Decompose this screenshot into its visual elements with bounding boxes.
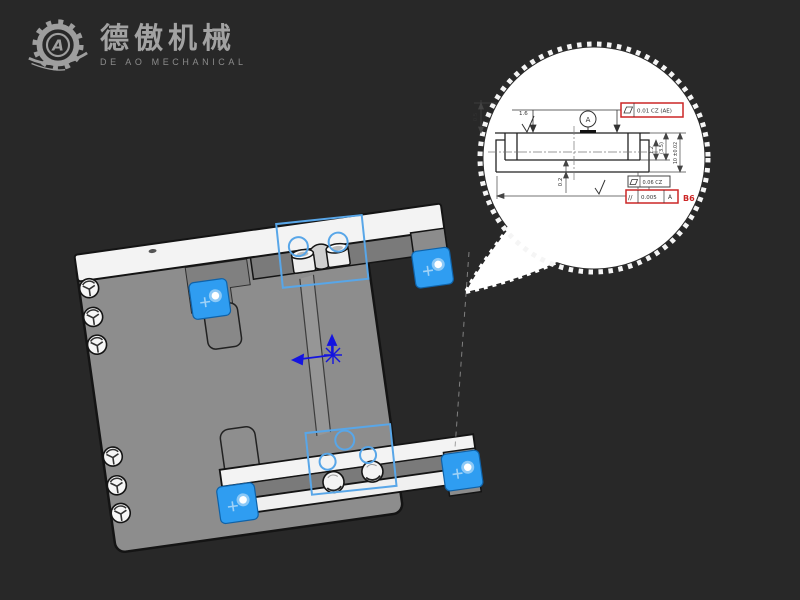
cad-model-3d	[74, 201, 486, 553]
gdt-mid-value: 0.06 CZ	[643, 180, 663, 186]
gdt-frame-flatness-top: 0.01 CZ (AE)	[621, 103, 683, 117]
dim-bottom-text: 0.2	[558, 178, 564, 187]
clamp-pad-highlight	[441, 450, 484, 492]
scene: A 1.6 0.5	[0, 0, 800, 600]
dim-right-3: 10 ±0.02	[673, 142, 679, 164]
clamp-pad-highlight	[216, 482, 259, 524]
clamp-pad-highlight	[411, 247, 454, 289]
callout-bubble: A 1.6 0.5	[466, 44, 708, 292]
locating-pin-cylinder	[291, 248, 316, 273]
dim-right-2: (3.5)	[659, 142, 665, 154]
gdt-top-value: 0.01 CZ (AE)	[637, 109, 672, 115]
hidden-edge-dashed	[455, 252, 469, 448]
dim-right-1: 1.2	[649, 146, 655, 154]
roughness-value: 1.6	[519, 111, 528, 117]
clamp-pad-highlight	[188, 278, 231, 320]
gdt-bottom-value: 0.005	[641, 195, 657, 201]
gdt-bottom-datum: A	[668, 195, 672, 201]
balloon-tag: B6	[683, 194, 695, 203]
datum-label: A	[586, 116, 591, 124]
dim-left-text: 0.5	[473, 112, 479, 121]
